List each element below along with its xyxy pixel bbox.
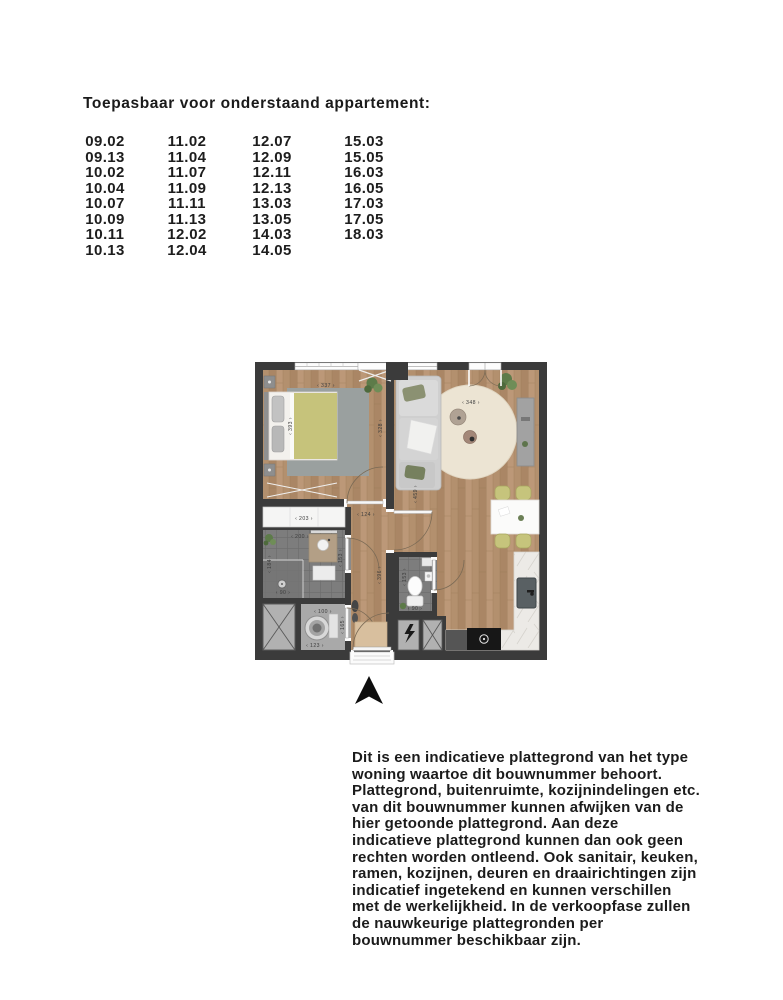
- doormat: [355, 622, 387, 648]
- apartment-number: 10.13: [80, 243, 130, 259]
- apartment-number: 12.07: [247, 134, 297, 150]
- dim-laundry-bottom: ‹ 123 ›: [306, 643, 324, 649]
- dim-bathroom-side: ‹ 153 ›: [338, 549, 344, 567]
- floorplan: ‹ 337 › ‹ 393 › ‹ 328 › ‹ 348 › ‹ 459 › …: [255, 362, 547, 708]
- apartment-number: 17.03: [339, 196, 389, 212]
- apartment-number: 12.02: [162, 227, 212, 243]
- apartment-number: 12.11: [247, 165, 297, 181]
- bath-mat: [313, 566, 335, 580]
- apartment-number: 10.04: [80, 181, 130, 197]
- apartment-number: 14.05: [247, 243, 297, 259]
- disclaimer-line: bouwnummer beschikbaar zijn.: [352, 933, 764, 950]
- apartment-number: 16.03: [339, 165, 389, 181]
- dim-hall-depth: ‹ 396 ›: [377, 566, 383, 584]
- north-arrow-icon: [355, 676, 383, 704]
- bedroom-window: [295, 363, 358, 370]
- apartment-number: 13.05: [247, 212, 297, 228]
- disclaimer-line: hier getoonde plattegrond. Aan deze: [352, 816, 764, 833]
- toilet-shelf: [422, 558, 432, 566]
- apartment-number: 12.13: [247, 181, 297, 197]
- apartment-number: 13.03: [247, 196, 297, 212]
- dim-bedroom-side: ‹ 328 ›: [378, 419, 384, 437]
- dining-chair: [495, 486, 510, 500]
- apartment-column-4: 15.03 15.05 16.03 16.05 17.03 17.05 18.0…: [339, 134, 389, 243]
- apartment-number: 18.03: [339, 227, 389, 243]
- apartment-number: 11.09: [162, 181, 212, 197]
- sofa-blanket: [404, 465, 426, 481]
- disclaimer-line: indicatief ingetekend en kunnen verschil…: [352, 883, 764, 900]
- living-window: [405, 363, 437, 370]
- bathroom: [263, 530, 345, 598]
- laundry-shelf: [329, 614, 338, 638]
- dim-bedroom-width: ‹ 337 ›: [317, 383, 335, 389]
- disclaimer-line: van dit bouwnummer kunnen afwijken van d…: [352, 800, 764, 817]
- apartment-number: 15.03: [339, 134, 389, 150]
- bed-blanket: [293, 393, 337, 459]
- dim-hall-width: ‹ 124 ›: [357, 512, 375, 518]
- dim-toilet-depth: ‹ 153 ›: [402, 568, 408, 586]
- dim-laundry-depth: ‹ 165 ›: [340, 616, 346, 634]
- dim-living-width: ‹ 348 ›: [462, 400, 480, 406]
- apartment-number: 10.09: [80, 212, 130, 228]
- apartment-number: 09.02: [80, 134, 130, 150]
- disclaimer-line: Plattegrond, buitenruimte, kozijnindelin…: [352, 783, 764, 800]
- wall-chunk: [386, 362, 408, 380]
- apartment-number: 11.07: [162, 165, 212, 181]
- toilet-fixture: [408, 577, 422, 596]
- apartment-column-3: 12.07 12.09 12.11 12.13 13.03 13.05 14.0…: [247, 134, 297, 258]
- dim-bedroom-depth: ‹ 393 ›: [288, 417, 294, 435]
- bathroom-mirror: [311, 531, 337, 534]
- kitchen-cabinet: [446, 630, 467, 650]
- pillow: [272, 426, 284, 452]
- apartment-number: 12.09: [247, 150, 297, 166]
- floorplan-svg: ‹ 337 › ‹ 393 › ‹ 328 › ‹ 348 › ‹ 459 › …: [255, 362, 547, 708]
- dim-wardrobe-width: ‹ 203 ›: [295, 516, 313, 522]
- dining-chair: [516, 486, 531, 500]
- apartment-column-2: 11.02 11.04 11.07 11.09 11.11 11.13 12.0…: [162, 134, 212, 258]
- disclaimer-line: rechten worden ontleend. Ook sanitair, k…: [352, 850, 764, 867]
- disclaimer-line: Dit is een indicatieve plattegrond van h…: [352, 750, 764, 767]
- apartment-number: 11.04: [162, 150, 212, 166]
- disclaimer-line: de nauwkeurige plattegronden per: [352, 916, 764, 933]
- meter-cupboard: [394, 616, 446, 650]
- headboard: [264, 392, 269, 460]
- pillow: [272, 396, 284, 422]
- disclaimer-line: met de werkelijkheid. In de verkoopfase …: [352, 899, 764, 916]
- dim-living-depth: ‹ 459 ›: [413, 485, 419, 503]
- apartment-number: 10.02: [80, 165, 130, 181]
- apartment-number: 11.13: [162, 212, 212, 228]
- apartment-number: 16.05: [339, 181, 389, 197]
- dim-shower-width: ‹ 90 ›: [276, 590, 291, 596]
- dim-bathroom-width: ‹ 200 ›: [291, 534, 309, 540]
- shaft: [263, 604, 295, 650]
- apartment-number: 11.11: [162, 196, 212, 212]
- sideboard: [517, 398, 534, 466]
- apartment-column-1: 09.02 09.13 10.02 10.04 10.07 10.09 10.1…: [80, 134, 130, 258]
- apartment-number: 11.02: [162, 134, 212, 150]
- plant-icon: [400, 603, 406, 609]
- dim-toilet-width: ‹ 90 ›: [408, 606, 423, 612]
- sofa: [396, 376, 441, 490]
- apartment-number: 14.03: [247, 227, 297, 243]
- apartment-number: 17.05: [339, 212, 389, 228]
- apartment-number: 12.04: [162, 243, 212, 259]
- page-title: Toepasbaar voor onderstaand appartement:: [83, 95, 431, 113]
- disclaimer-line: indicatieve plattegrond kunnen dan ook g…: [352, 833, 764, 850]
- apartment-number: 09.13: [80, 150, 130, 166]
- dining-chair: [495, 534, 510, 548]
- brochure-page: Toepasbaar voor onderstaand appartement:…: [0, 0, 783, 1000]
- dining-table: [491, 500, 539, 534]
- apartment-number: 15.05: [339, 150, 389, 166]
- apartment-number: 10.11: [80, 227, 130, 243]
- disclaimer: Dit is een indicatieve plattegrond van h…: [352, 750, 764, 949]
- dim-bathroom-depth: ‹ 184 ›: [267, 555, 273, 573]
- dim-laundry-width: ‹ 100 ›: [314, 609, 332, 615]
- dining-chair: [516, 534, 531, 548]
- disclaimer-line: ramen, kozijnen, deuren en draairichting…: [352, 866, 764, 883]
- disclaimer-line: woning waartoe dit bouwnummer behoort.: [352, 767, 764, 784]
- washbasin: [318, 540, 329, 551]
- apartment-number: 10.07: [80, 196, 130, 212]
